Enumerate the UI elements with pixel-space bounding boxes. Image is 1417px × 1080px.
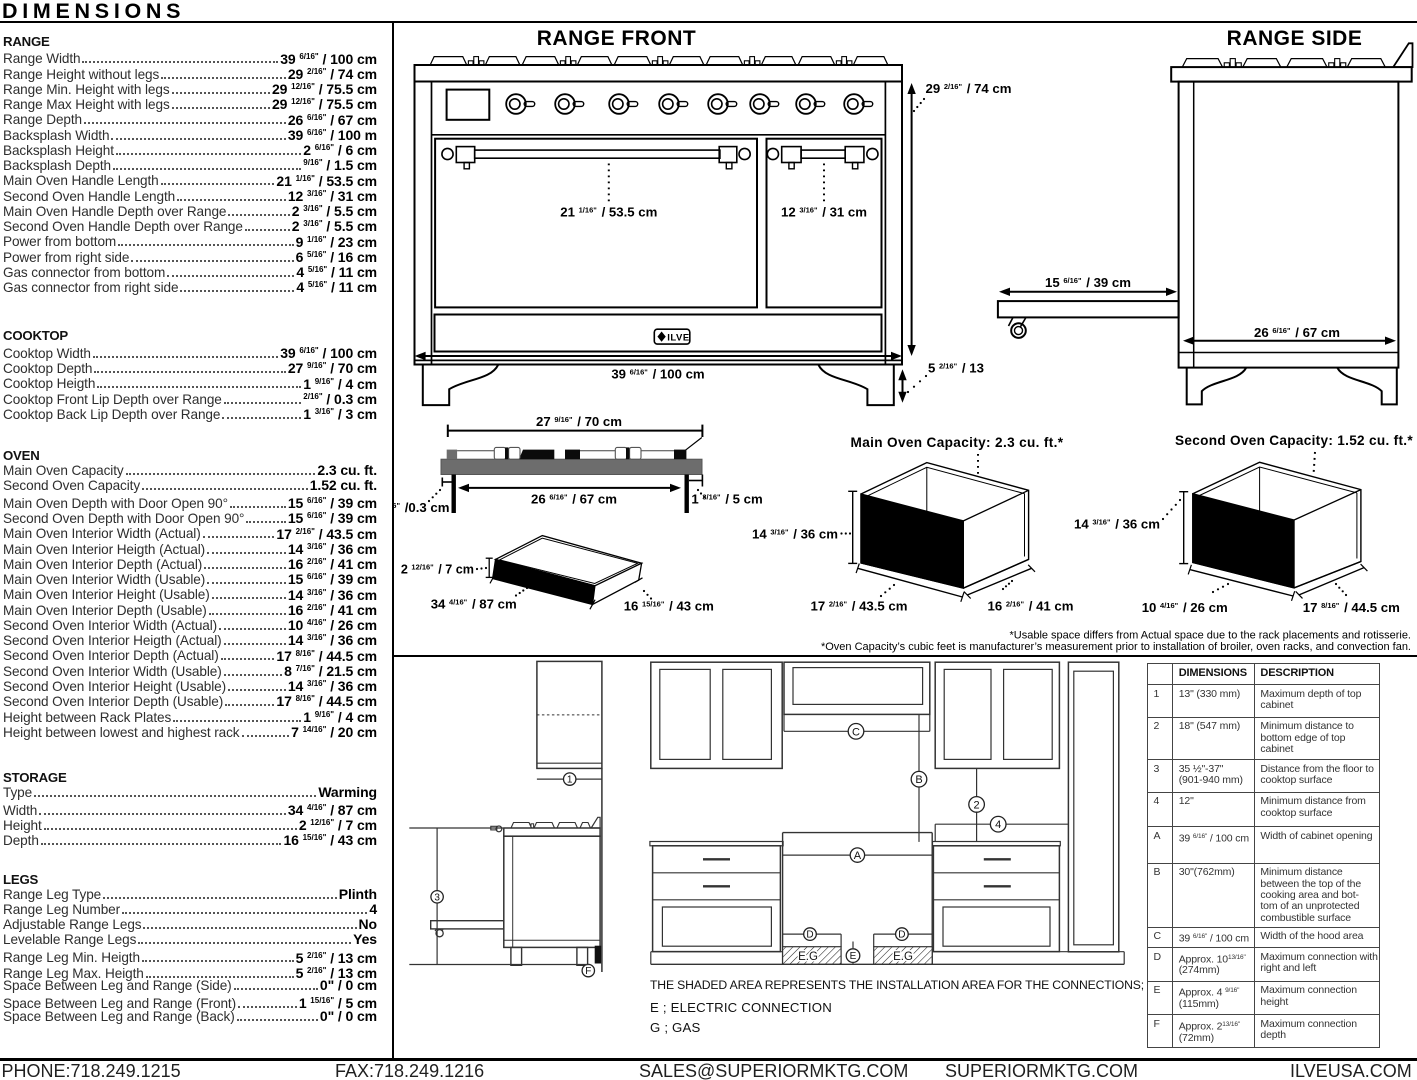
svg-text:2 12/16" / 7 cm: 2 12/16" / 7 cm <box>401 562 474 576</box>
svg-text:2: 2 <box>974 799 980 811</box>
svg-text:E.G: E.G <box>798 951 818 963</box>
svg-text:F: F <box>585 966 591 977</box>
svg-text:1: 1 <box>567 775 573 786</box>
svg-text:16 15/16" / 43 cm: 16 15/16" / 43 cm <box>624 599 714 614</box>
svg-text:3: 3 <box>434 892 440 903</box>
svg-text:A: A <box>854 850 862 862</box>
svg-text:39 6/16" / 100 cm: 39 6/16" / 100 cm <box>611 367 704 382</box>
svg-text:14 3/16" / 36 cm: 14 3/16" / 36 cm <box>752 527 838 542</box>
svg-text:ILVE: ILVE <box>667 333 689 344</box>
svg-text:1 3/16" / 5 cm: 1 3/16" / 5 cm <box>691 492 762 507</box>
svg-text:B: B <box>915 774 922 786</box>
svg-text:16 2/16" / 41 cm: 16 2/16" / 41 cm <box>988 599 1074 614</box>
svg-text:Second Oven Capacity: 1.52 cu.: Second Oven Capacity: 1.52 cu. ft.* <box>1175 433 1413 448</box>
svg-text:12 3/16" / 31 cm: 12 3/16" / 31 cm <box>781 205 867 220</box>
svg-text:4: 4 <box>995 819 1001 831</box>
svg-text:21 1/16" / 53.5 cm: 21 1/16" / 53.5 cm <box>560 205 657 220</box>
svg-text:C: C <box>852 726 860 738</box>
svg-text:*Oven Capacity’s cubic feet is: *Oven Capacity’s cubic feet is manufactu… <box>821 641 1411 653</box>
svg-text:26 6/16" / 67 cm: 26 6/16" / 67 cm <box>531 492 617 507</box>
svg-text:E: E <box>850 951 857 962</box>
svg-text:17 2/16" / 43.5 cm: 17 2/16" / 43.5 cm <box>811 599 908 614</box>
svg-text:RANGE SIDE: RANGE SIDE <box>1227 27 1363 50</box>
svg-text:34 4/16" / 87 cm: 34 4/16" / 87 cm <box>431 597 517 612</box>
svg-text:*Usable space differs from Act: *Usable space differs from Actual space … <box>1009 630 1411 642</box>
svg-text:26 6/16" / 67 cm: 26 6/16" / 67 cm <box>1254 325 1340 340</box>
svg-text:27 9/16" / 70 cm: 27 9/16" / 70 cm <box>536 414 622 429</box>
svg-text:5 2/16" / 13: 5 2/16" / 13 <box>928 361 984 376</box>
svg-text:29 2/16" / 74 cm: 29 2/16" / 74 cm <box>926 81 1012 96</box>
svg-text:D: D <box>898 930 905 941</box>
svg-text:10 4/16" / 26 cm: 10 4/16" / 26 cm <box>1142 600 1228 615</box>
svg-text:RANGE FRONT: RANGE FRONT <box>537 27 697 50</box>
svg-text:E.G: E.G <box>893 951 913 963</box>
svg-text:D: D <box>806 930 813 941</box>
svg-text:14 3/16" / 36 cm: 14 3/16" / 36 cm <box>1074 517 1160 532</box>
svg-text:17 8/16" / 44.5 cm: 17 8/16" / 44.5 cm <box>1303 600 1400 615</box>
svg-text:Main Oven Capacity: 2.3 cu. ft: Main Oven Capacity: 2.3 cu. ft.* <box>851 435 1064 450</box>
svg-text:2/16" /0.3 cm: 2/16" /0.3 cm <box>393 500 450 515</box>
svg-text:15 6/16" / 39 cm: 15 6/16" / 39 cm <box>1045 275 1131 290</box>
